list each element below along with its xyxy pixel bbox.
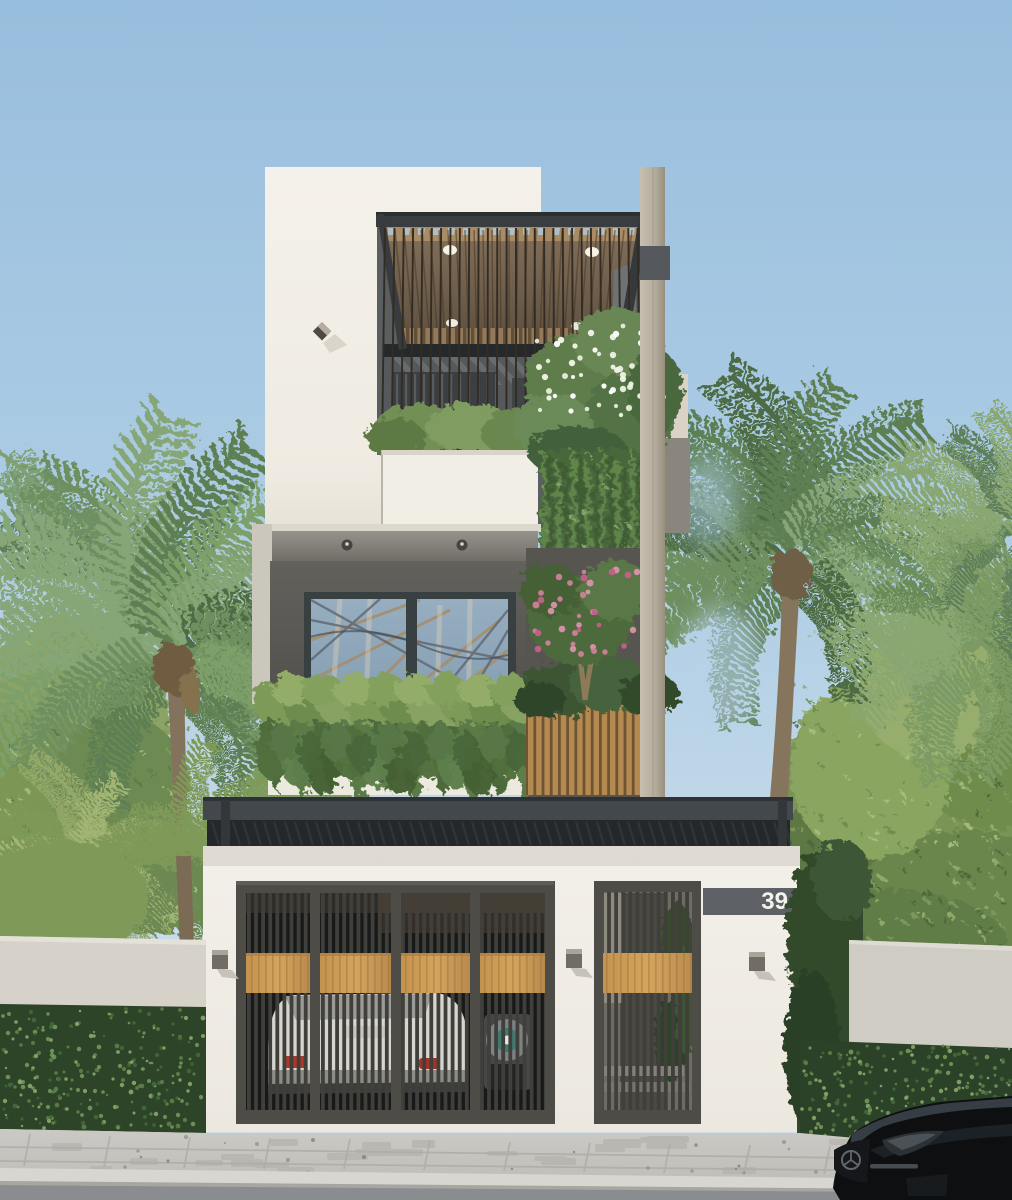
svg-text:39: 39 (761, 888, 788, 915)
